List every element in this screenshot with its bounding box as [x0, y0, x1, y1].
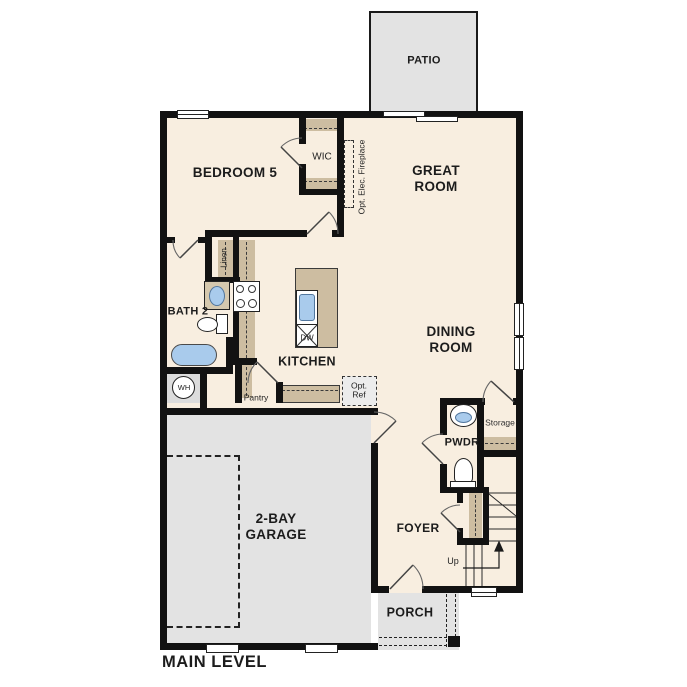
wall-pantry-left: [235, 360, 242, 403]
wic-shelf-top: [303, 119, 338, 131]
burner: [236, 285, 244, 293]
wall-storage-top-stub: [513, 398, 516, 405]
foyer-label: FOYER: [397, 521, 440, 535]
dishwasher-label: DW: [300, 335, 313, 344]
linen-label: Linen: [221, 248, 230, 268]
kitchen-counter-south: [279, 385, 340, 403]
garage-label: 2-BAY GARAGE: [245, 511, 306, 543]
wall-top: [160, 111, 523, 118]
wall-garage-bottom: [160, 643, 378, 650]
wic-shelf-bottom-line: [304, 181, 337, 182]
bedroom5-label: BEDROOM 5: [193, 165, 277, 181]
wic-label: WIC: [312, 152, 331, 163]
wall-pwdr-left-top: [440, 405, 447, 435]
porch-label: PORCH: [387, 606, 434, 621]
floor-plan: PATIO BEDROOM 5 WIC GREAT ROOM DINING RO…: [0, 0, 687, 687]
garage-bay-outline: [167, 455, 240, 628]
pwdr-label: PWDR: [445, 437, 480, 450]
burner: [248, 285, 256, 293]
dining-room-label: DINING ROOM: [426, 324, 475, 356]
wall-garage-top: [165, 408, 378, 415]
bath2-tub: [171, 344, 217, 366]
wall-bath-top-a: [167, 237, 175, 243]
patio-label: PATIO: [407, 55, 440, 68]
pwdr-toilet-bowl: [454, 458, 473, 483]
bath2-label: BATH 2: [168, 306, 209, 319]
wall-closet-left-top: [457, 493, 463, 503]
wall-tub-right: [226, 337, 233, 371]
wall-bedroom-bottom: [205, 230, 307, 237]
pwdr-sink: [455, 412, 472, 423]
main-level-title: MAIN LEVEL: [162, 653, 267, 672]
closet-shelf-line: [475, 495, 476, 536]
wall-storage-bottom: [483, 450, 516, 457]
porch-edge-line: [379, 637, 457, 638]
island-sink: [299, 294, 315, 321]
burner: [248, 299, 257, 308]
fireplace-label: Opt. Elec. Fireplace: [357, 140, 366, 215]
up-label: Up: [447, 557, 459, 567]
porch-edge-line: [379, 645, 457, 646]
window-foyer: [471, 587, 497, 597]
storage-shelf-line: [485, 443, 514, 444]
porch-post: [448, 636, 460, 647]
garage-door-marker-b: [305, 644, 338, 653]
wall-left: [160, 111, 167, 650]
window-dining-b: [514, 337, 524, 370]
pantry-label: Pantry: [244, 393, 269, 402]
wall-counter-stub: [276, 382, 283, 403]
stove: [233, 281, 260, 312]
storage-label: Storage: [485, 418, 515, 427]
counter-south-line: [282, 390, 338, 391]
wall-wh-right: [200, 372, 207, 408]
pwdr-toilet-tank: [450, 481, 476, 488]
front-door-opening: [389, 586, 422, 593]
patio-slider-panel-b: [416, 116, 458, 122]
kitchen-label: KITCHEN: [278, 355, 336, 370]
wall-garage-right-a: [371, 408, 378, 414]
wall-closet-left-bottom: [457, 528, 463, 544]
window-bedroom: [177, 110, 209, 119]
porch-edge-line: [446, 594, 447, 647]
wic-shelf-top-line: [304, 128, 337, 129]
window-dining-a: [514, 303, 524, 336]
great-room-label: GREAT ROOM: [412, 163, 460, 195]
bath2-sink: [209, 286, 225, 306]
bath2-toilet-bowl: [197, 317, 218, 332]
opt-ref-label: Opt. Ref: [351, 382, 367, 401]
wall-garage-right-b: [371, 443, 378, 593]
wall-bath-hall: [205, 237, 212, 283]
garage-door-marker-a: [206, 644, 239, 653]
burner: [236, 299, 245, 308]
wall-wic-right: [337, 118, 344, 237]
wall-wic-bottom: [299, 189, 344, 195]
fireplace-outline: [344, 140, 354, 208]
water-heater-label: WH: [178, 384, 191, 392]
wall-wic-left-top: [299, 118, 306, 144]
